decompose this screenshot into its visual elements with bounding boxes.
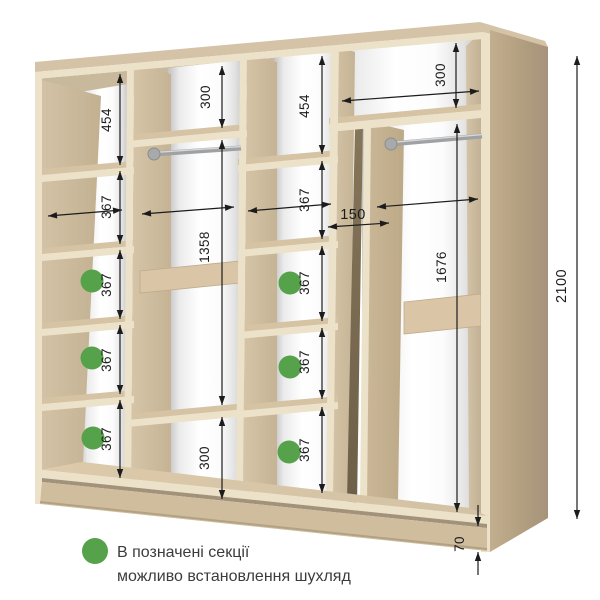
diagram-canvas: 454 367 367 367 367 300 1358 300 454 367… bbox=[0, 0, 600, 600]
dimension-arrow bbox=[574, 56, 580, 519]
dimension-label: 367 bbox=[99, 273, 114, 297]
dimension-label: 1676 bbox=[434, 251, 449, 283]
legend-line-1: В позначені секції bbox=[117, 544, 250, 561]
drawer-marker-icon bbox=[82, 538, 108, 564]
dimension-arrow bbox=[475, 552, 481, 575]
dimension-label: 367 bbox=[99, 427, 114, 451]
legend-line-2: можливо встановлення шухляд bbox=[117, 568, 351, 585]
left-wall-front-edge bbox=[35, 63, 42, 504]
dimension-label: 367 bbox=[297, 188, 312, 212]
dimension-label: 454 bbox=[297, 94, 312, 118]
dimension-label: 300 bbox=[198, 85, 213, 109]
dimension-label: 454 bbox=[99, 108, 114, 132]
dimension-label: 367 bbox=[99, 195, 114, 219]
right-side-panel bbox=[490, 30, 548, 552]
dimension-label: 367 bbox=[297, 438, 312, 462]
dimension-label: 367 bbox=[297, 350, 312, 374]
rod-flange-icon bbox=[385, 138, 397, 150]
dimension-label: 367 bbox=[99, 348, 114, 372]
wardrobe-dimension-diagram: 454 367 367 367 367 300 1358 300 454 367… bbox=[0, 0, 600, 600]
dimension-label: 300 bbox=[433, 63, 448, 87]
dimension-label: 1358 bbox=[197, 231, 212, 263]
partition-2-side-face bbox=[243, 53, 277, 493]
rod-flange-icon bbox=[148, 148, 160, 160]
right-wall-front-edge bbox=[481, 30, 490, 552]
dimension-label-slot-width: 150 bbox=[340, 207, 365, 223]
dimension-label-plinth-height: 70 bbox=[452, 536, 467, 552]
dimension-label-total-height: 2100 bbox=[554, 269, 570, 303]
dimension-label: 300 bbox=[197, 446, 212, 470]
legend: В позначені секції можливо встановлення … bbox=[82, 538, 351, 585]
dimension-label: 367 bbox=[297, 271, 312, 295]
